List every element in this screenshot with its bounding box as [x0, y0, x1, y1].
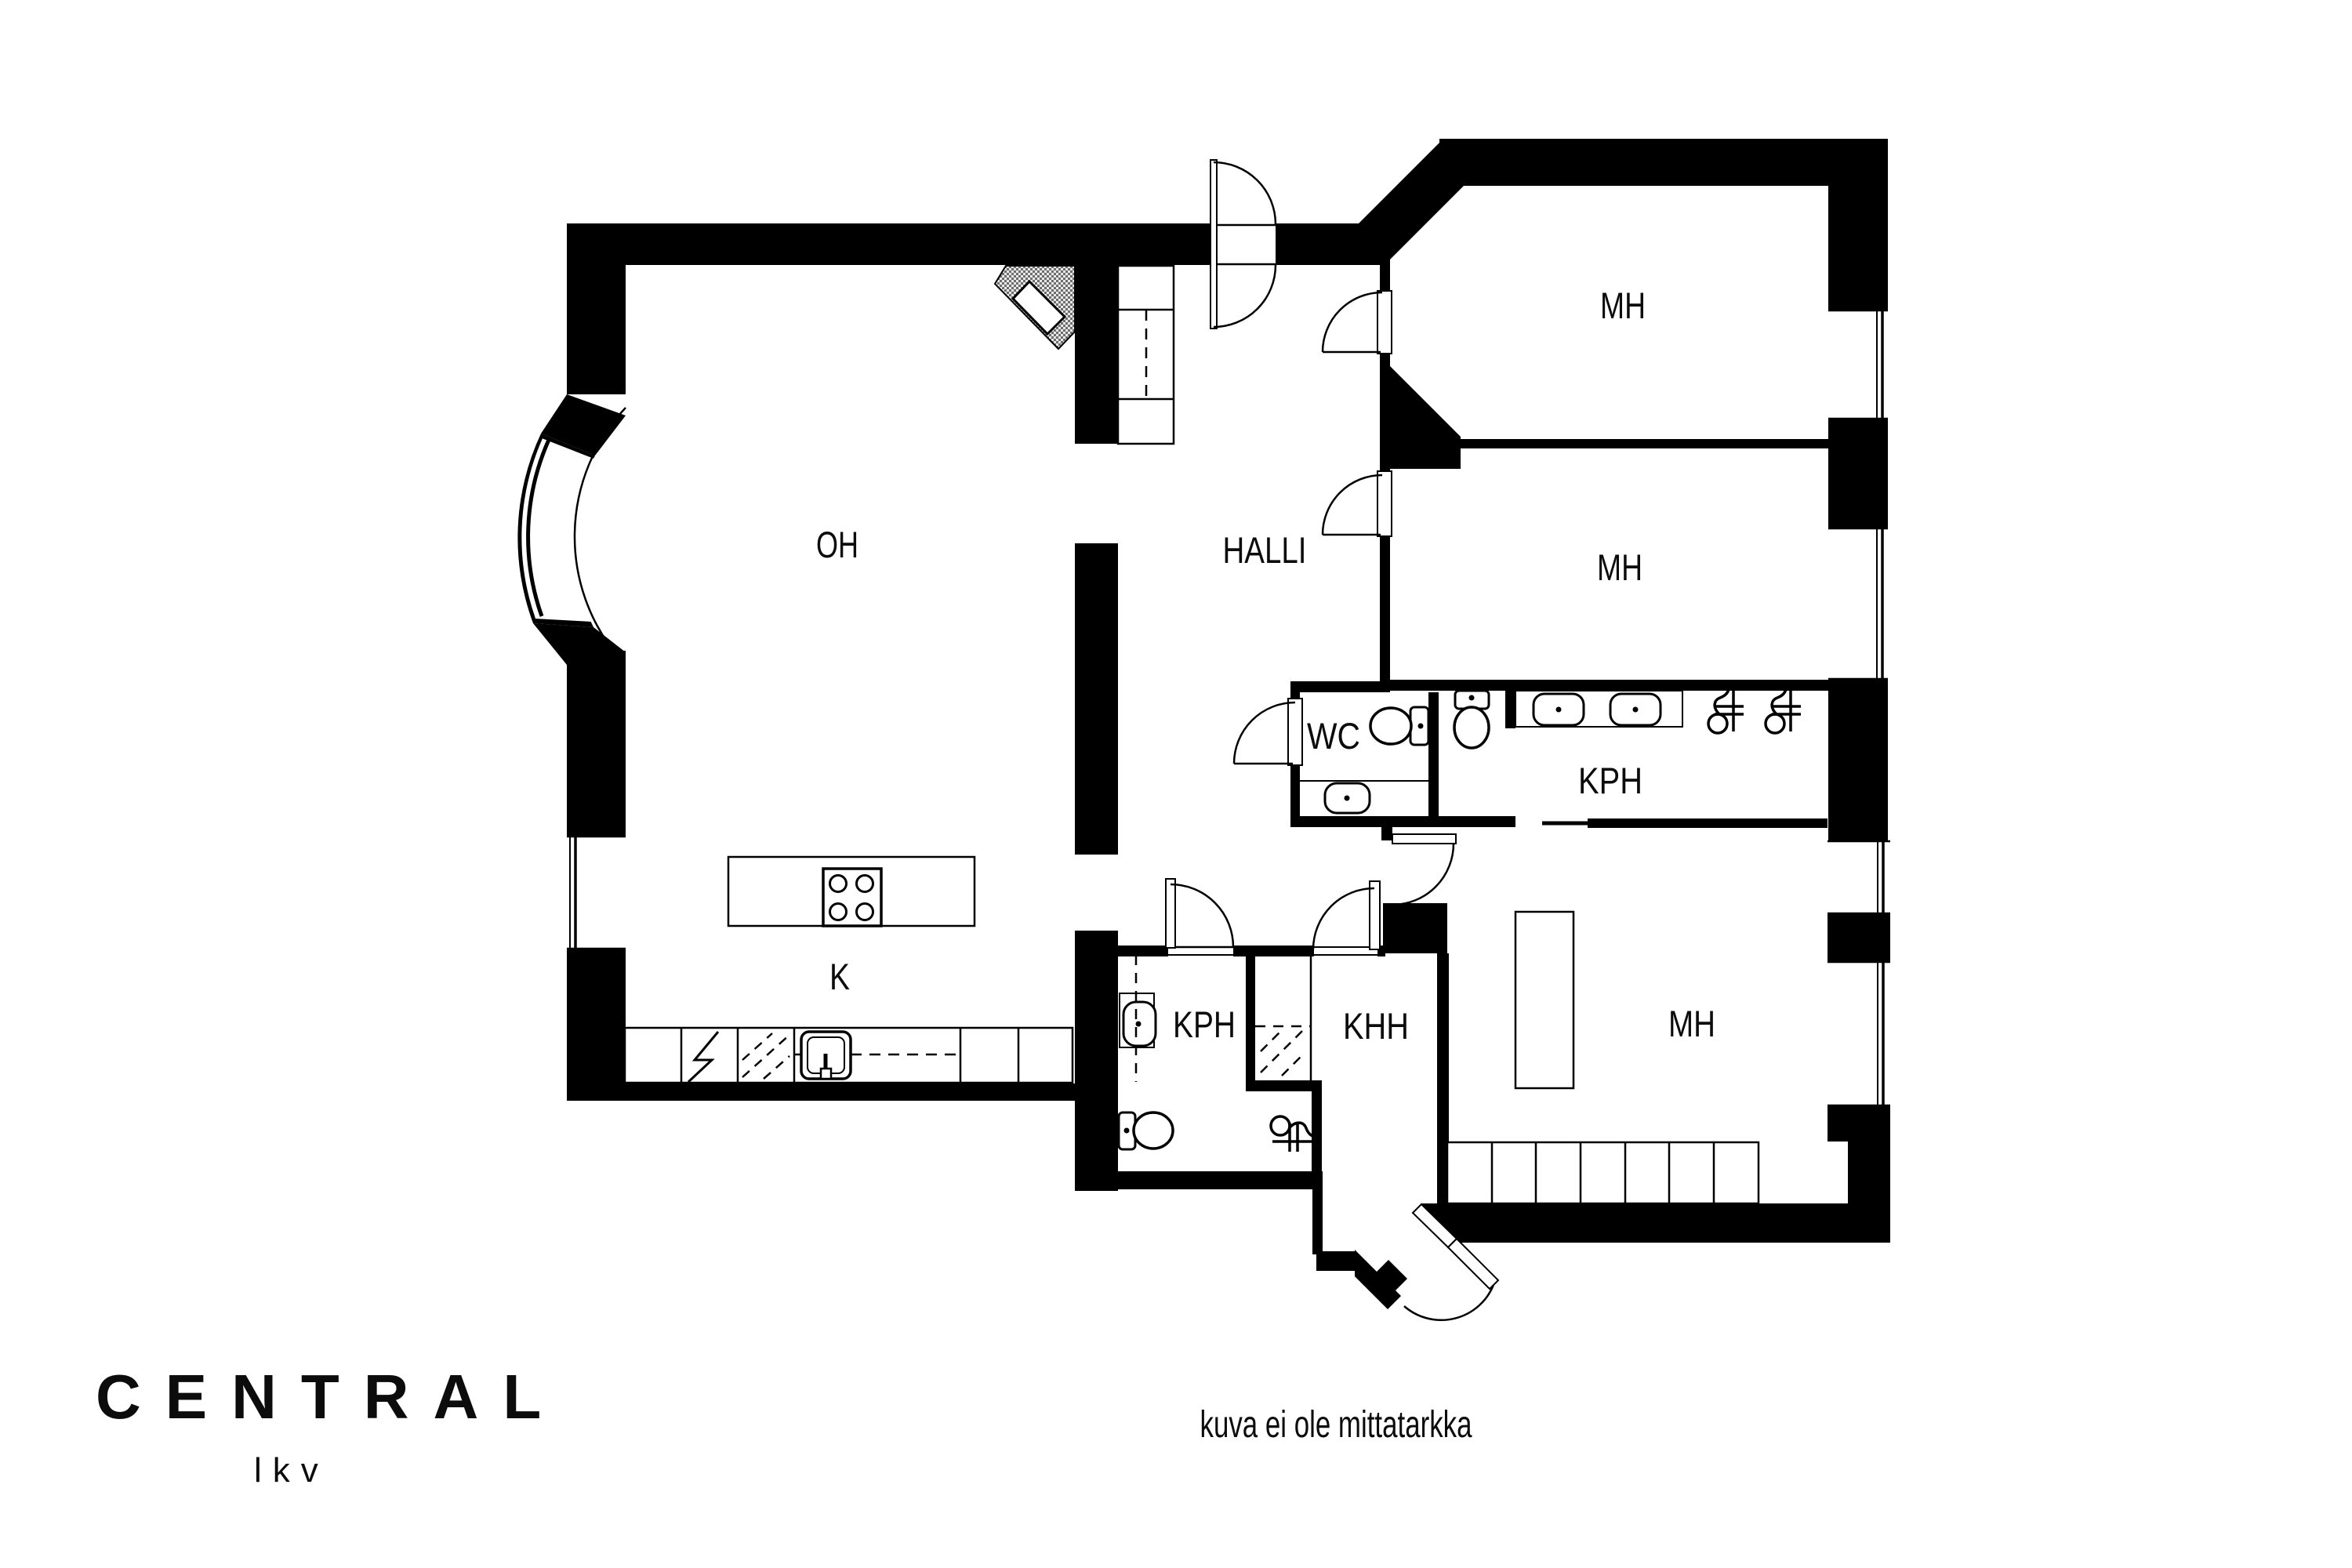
svg-text:KPH: KPH [1173, 1004, 1236, 1045]
svg-text:lkv: lkv [254, 1451, 329, 1490]
svg-text:MH: MH [1668, 1003, 1715, 1044]
svg-text:KPH: KPH [1578, 760, 1642, 801]
svg-text:OH: OH [816, 524, 858, 565]
svg-text:CENTRAL: CENTRAL [96, 1362, 565, 1432]
svg-text:kuva ei ole mittatarkka: kuva ei ole mittatarkka [1200, 1404, 1472, 1446]
svg-text:K: K [829, 956, 850, 997]
svg-text:KHH: KHH [1343, 1005, 1409, 1047]
svg-text:HALLI: HALLI [1223, 529, 1307, 571]
svg-text:MH: MH [1597, 546, 1642, 588]
svg-text:MH: MH [1600, 285, 1646, 326]
svg-text:WC: WC [1307, 715, 1360, 757]
